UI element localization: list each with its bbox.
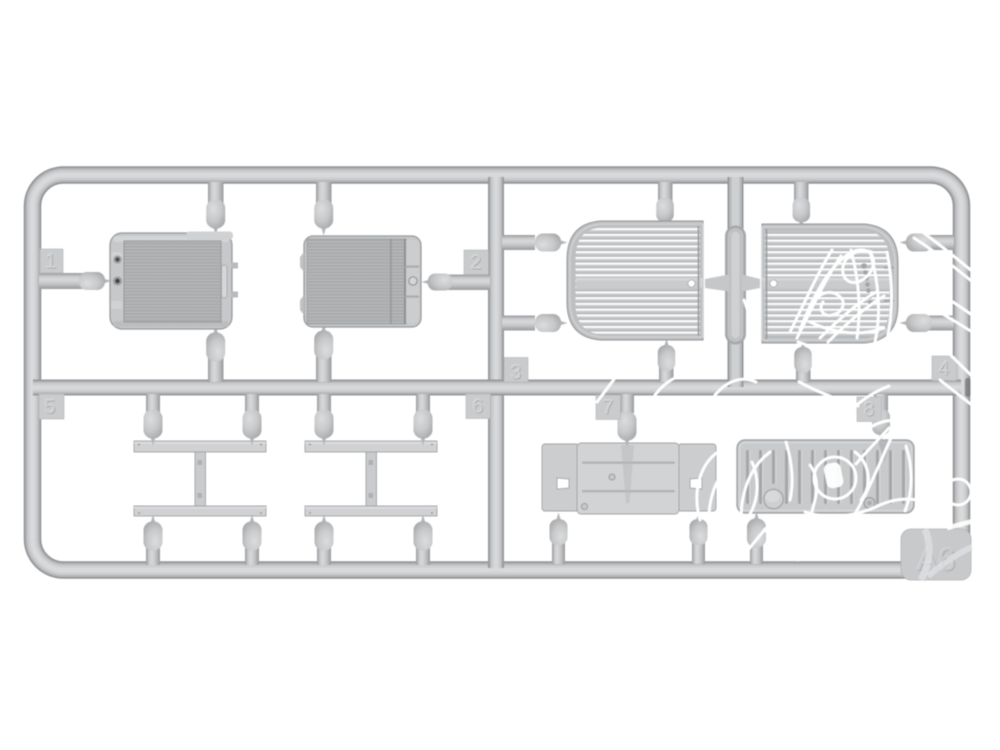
svg-text:1: 1 [46, 251, 57, 273]
svg-text:2: 2 [471, 252, 482, 274]
svg-text:4: 4 [939, 358, 950, 380]
svg-text:5: 5 [45, 397, 56, 419]
svg-text:7: 7 [603, 397, 614, 419]
svg-text:3: 3 [511, 362, 522, 384]
svg-text:8: 8 [864, 399, 875, 421]
svg-text:6: 6 [473, 396, 484, 418]
